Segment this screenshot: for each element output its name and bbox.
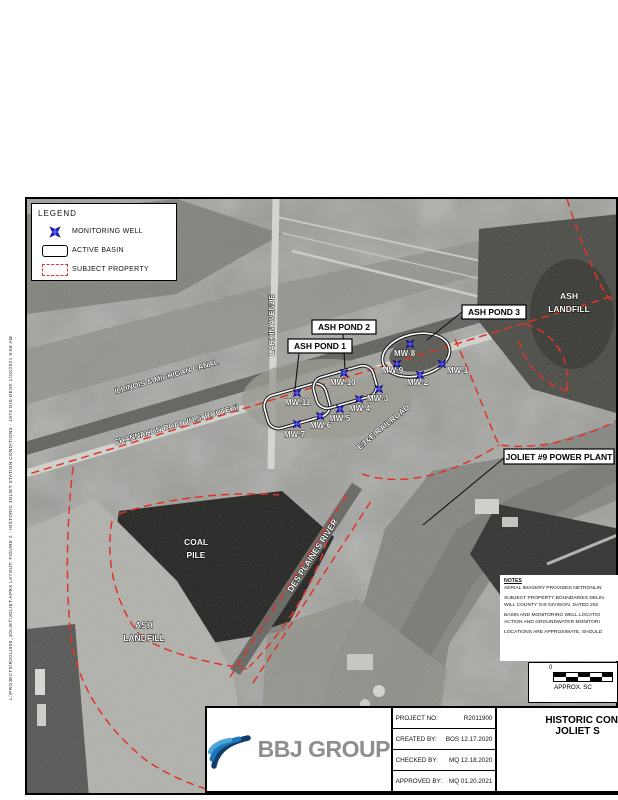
notes-title: NOTES — [504, 578, 614, 584]
note-line: ACTION AND GROUNDWATER MONITORI — [504, 620, 614, 626]
table-row: CREATED BY: BOS 12.17.2020 — [393, 729, 496, 750]
legend-item-active-basin: ACTIVE BASIN — [38, 241, 170, 260]
svg-text:ASH POND 3: ASH POND 3 — [468, 307, 520, 317]
well-label: MW-11 — [285, 398, 311, 407]
row-label: CHECKED BY: — [396, 757, 438, 764]
plot-stamp-text: L:\PROJECTS\R2011900_JOLIET\JOLIET.APRX … — [8, 288, 13, 700]
row-label: CREATED BY: — [396, 736, 437, 743]
well-label: MW-9 — [382, 366, 404, 375]
legend-label: MONITORING WELL — [72, 228, 143, 235]
row-value: MQ 12.18.2020 — [449, 757, 492, 764]
title-block-table: PROJECT NO: R2011900 CREATED BY: BOS 12.… — [393, 708, 498, 791]
note-line: SUBJECT PROPERTY BOUNDARIES DELIN — [504, 596, 614, 602]
subject-property-icon — [38, 264, 72, 276]
row-value: R2011900 — [464, 715, 493, 722]
note-line: AERIAL IMAGERY PROVIDED NETRONLIN — [504, 586, 614, 592]
label-joliet-9-power-plant: JOLIET #9 POWER PLANT — [504, 449, 614, 464]
bbj-logo-text: BBJ GROUP — [258, 736, 390, 763]
drawing-title-line2: JOLIET S — [545, 726, 618, 737]
legend-item-monitoring-well: MONITORING WELL — [38, 222, 170, 241]
label-larkin-avenue: LARKIN AVENUE — [267, 295, 276, 356]
well-label: MW-2 — [407, 378, 429, 387]
well-label: MW-8 — [394, 349, 416, 358]
table-row: CHECKED BY: MQ 12.18.2020 — [393, 750, 496, 771]
svg-text:LANDFILL: LANDFILL — [123, 633, 165, 643]
well-label: MW-10 — [330, 378, 356, 387]
svg-text:ASH: ASH — [560, 291, 578, 301]
note-line: BASIN AND MONITORING WELL LOCATIO — [504, 613, 614, 619]
bbj-logo-swoosh-icon — [208, 730, 252, 770]
drawing-title: HISTORIC CON JOLIET S — [497, 708, 618, 791]
svg-text:ASH: ASH — [135, 620, 153, 630]
label-ash-pond-2: ASH POND 2 — [312, 320, 376, 334]
legend-label: SUBJECT PROPERTY — [72, 266, 149, 273]
drawing-page: { "stamp": {"text": "L:\\PROJECTS\\R2011… — [0, 0, 618, 800]
legend: LEGEND MONITORING WELL ACTIVE BASIN SUBJ… — [31, 203, 177, 281]
legend-title: LEGEND — [38, 209, 170, 218]
monitoring-well-icon — [38, 224, 72, 240]
well-label: MW-3 — [367, 394, 389, 403]
svg-text:PILE: PILE — [187, 550, 206, 560]
note-line: LOCATIONS ARE APPROXIMATE, SHOULD — [504, 630, 614, 636]
drawing-title-line1: HISTORIC CON — [545, 715, 618, 726]
well-label: MW-1 — [447, 366, 469, 375]
row-label: APPROVED BY: — [396, 778, 443, 785]
bbj-logo: BBJ GROUP — [207, 708, 393, 791]
label-ash-pond-1: ASH POND 1 — [288, 339, 352, 353]
row-value: MQ 01.20.2021 — [449, 778, 492, 785]
row-label: PROJECT NO: — [396, 715, 438, 722]
title-block: BBJ GROUP PROJECT NO: R2011900 CREATED B… — [205, 706, 618, 793]
well-label: MW-5 — [329, 414, 351, 423]
scale-caption: APPROX. SC — [529, 684, 617, 691]
notes-box: NOTES AERIAL IMAGERY PROVIDED NETRONLIN … — [500, 575, 618, 661]
active-basin-icon — [38, 245, 72, 257]
well-label: MW-7 — [284, 430, 306, 439]
row-value: BOS 12.17.2020 — [446, 736, 493, 743]
legend-label: ACTIVE BASIN — [72, 247, 124, 254]
svg-text:ASH POND 2: ASH POND 2 — [318, 322, 370, 332]
table-row: APPROVED BY: MQ 01.20.2021 — [393, 771, 496, 791]
scale-zero-label: 0 — [549, 665, 617, 671]
note-line: WILL COUNTY GIS DIVISION, DATED 202 — [504, 603, 614, 609]
svg-text:JOLIET #9 POWER PLANT: JOLIET #9 POWER PLANT — [506, 452, 614, 462]
label-ash-pond-3: ASH POND 3 — [462, 305, 526, 319]
well-label: MW-4 — [349, 404, 371, 413]
svg-text:ASH POND 1: ASH POND 1 — [294, 341, 346, 351]
scale-bar: 0 APPROX. SC — [528, 662, 618, 703]
svg-text:LANDFILL: LANDFILL — [548, 304, 590, 314]
legend-item-subject-property: SUBJECT PROPERTY — [38, 260, 170, 279]
table-row: PROJECT NO: R2011900 — [393, 708, 496, 729]
svg-text:COAL: COAL — [184, 537, 208, 547]
well-label: MW-6 — [310, 421, 332, 430]
scale-bar-graphic — [553, 672, 613, 682]
